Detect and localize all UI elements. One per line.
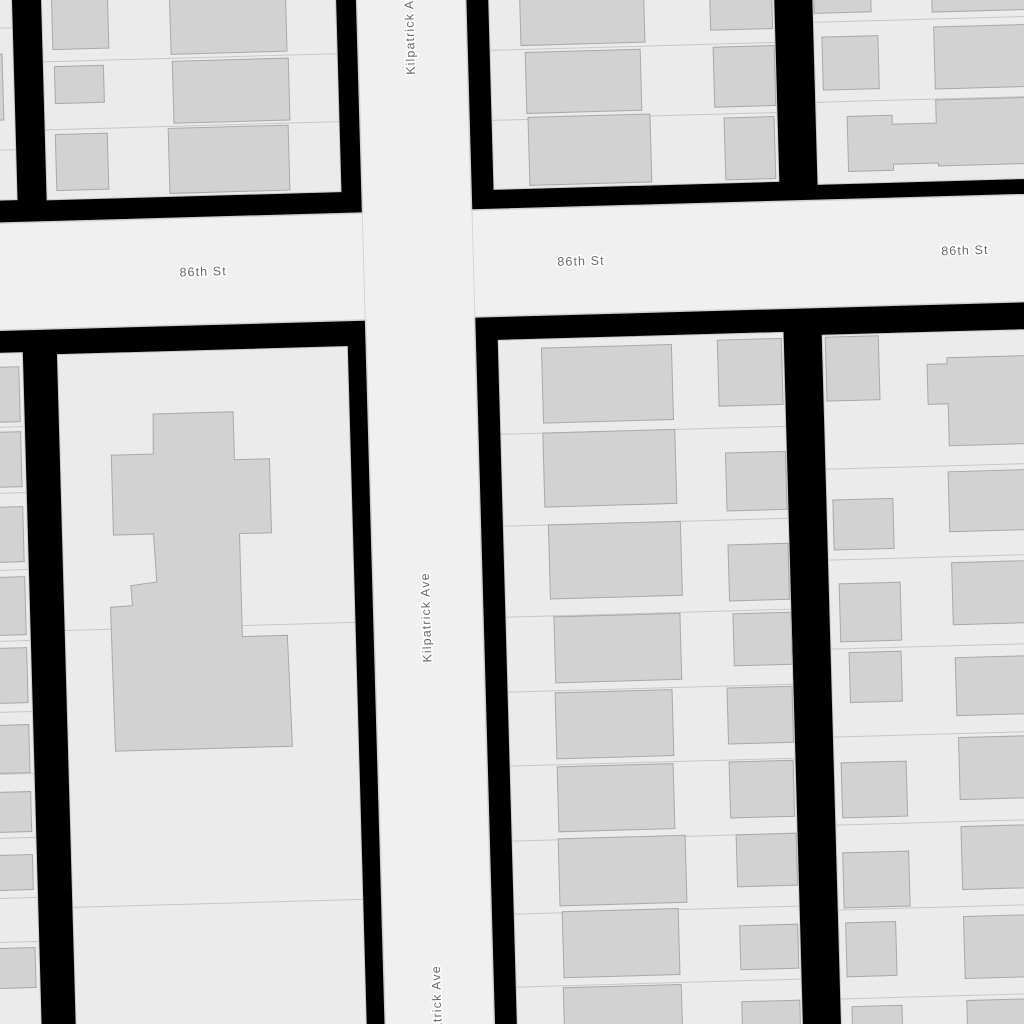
building-footprint	[170, 0, 287, 54]
building-footprint	[528, 114, 652, 185]
street-label: Kilpatrick Ave	[429, 965, 446, 1024]
building-footprint	[0, 725, 30, 775]
building-footprint	[555, 690, 674, 759]
street-label: Kilpatrick Ave	[402, 0, 419, 75]
building-footprint	[736, 833, 797, 887]
building-footprint	[952, 558, 1024, 625]
building-footprint	[0, 367, 20, 424]
building-footprint	[0, 855, 33, 892]
city-block-nw	[40, 0, 341, 200]
city-block-n	[487, 0, 779, 189]
map-rotated-layer: 86th St86th St86th StKilpatrick AveKilpa…	[0, 0, 1024, 1024]
street-intersection	[363, 210, 475, 320]
building-footprint	[958, 733, 1024, 800]
building-footprint	[841, 761, 908, 818]
building-footprint	[849, 651, 902, 702]
building-footprint	[0, 432, 22, 489]
building-footprint	[562, 909, 680, 978]
building-footprint	[934, 22, 1024, 89]
building-footprint	[0, 507, 24, 564]
city-block-se	[822, 327, 1024, 1024]
street-label: 86th St	[179, 264, 227, 279]
building-footprint	[0, 947, 36, 989]
building-footprint	[709, 0, 773, 30]
building-footprint	[963, 912, 1024, 979]
building-footprint	[543, 429, 677, 507]
building-footprint	[54, 65, 104, 103]
building-footprint	[740, 924, 799, 970]
building-footprint	[0, 577, 26, 637]
building-footprint	[558, 835, 687, 906]
building-footprint	[727, 686, 794, 744]
building-footprint	[852, 1005, 903, 1024]
building-footprint	[948, 467, 1024, 532]
building-footprint	[717, 338, 783, 406]
building-footprint	[525, 49, 642, 113]
building-footprint	[813, 0, 871, 13]
building-footprint	[168, 125, 290, 193]
building-footprint	[554, 613, 682, 682]
building-footprint	[172, 58, 290, 123]
building-footprint	[729, 760, 795, 818]
building-footprint	[931, 0, 1024, 12]
building-footprint	[728, 543, 790, 601]
city-block-s	[498, 332, 805, 1024]
street-label: 86th St	[557, 254, 605, 269]
building-footprint	[846, 921, 897, 976]
building-footprint	[955, 653, 1024, 716]
building-footprint	[548, 521, 682, 599]
map-canvas[interactable]: 86th St86th St86th StKilpatrick AveKilpa…	[0, 0, 1024, 1024]
building-footprint	[519, 0, 645, 46]
building-footprint	[733, 612, 792, 666]
building-footprint	[839, 582, 902, 642]
building-footprint	[713, 46, 776, 108]
street-label: Kilpatrick Ave	[418, 572, 435, 663]
building-footprint	[724, 117, 776, 180]
city-block-ne	[811, 0, 1024, 184]
building-footprint	[55, 133, 109, 190]
building-footprint	[541, 344, 673, 423]
building-footprint	[961, 822, 1024, 890]
building-footprint	[822, 36, 879, 91]
building-footprint	[725, 451, 787, 511]
street-label: 86th St	[941, 243, 989, 258]
building-footprint	[557, 764, 675, 832]
building-footprint	[825, 336, 880, 401]
building-footprint	[0, 648, 28, 705]
city-block-sw	[57, 347, 369, 1024]
building-footprint	[967, 996, 1024, 1024]
building-footprint	[742, 1000, 801, 1024]
building-footprint	[843, 851, 911, 908]
building-footprint	[833, 498, 894, 550]
building-footprint	[563, 984, 683, 1024]
map-viewport: 86th St86th St86th StKilpatrick AveKilpa…	[0, 0, 1024, 1024]
building-footprint	[52, 0, 109, 50]
building-footprint	[0, 792, 32, 834]
